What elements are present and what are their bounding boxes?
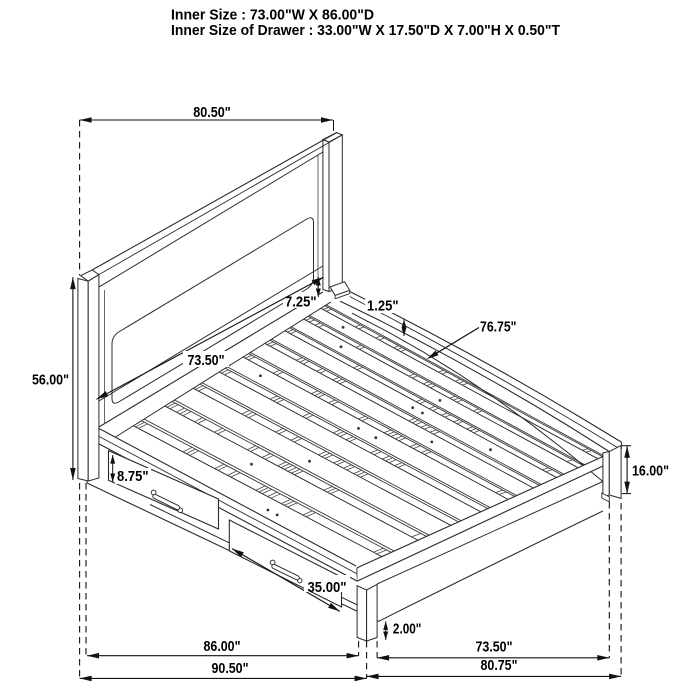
svg-text:16.00": 16.00" — [632, 462, 669, 479]
svg-text:90.50": 90.50" — [212, 660, 249, 677]
svg-text:35.00": 35.00" — [308, 579, 347, 596]
svg-text:Inner Size : 73.00"W X 86.00"D: Inner Size : 73.00"W X 86.00"D — [171, 8, 374, 24]
svg-text:7.25": 7.25" — [285, 295, 317, 311]
svg-text:8.75": 8.75" — [117, 469, 149, 485]
svg-text:86.00": 86.00" — [204, 638, 241, 655]
svg-text:1.25": 1.25" — [367, 299, 399, 315]
svg-text:73.50": 73.50" — [476, 639, 513, 656]
svg-text:73.50": 73.50" — [188, 352, 225, 369]
svg-text:56.00": 56.00" — [32, 372, 69, 389]
svg-text:Inner Size of Drawer : 33.00"W: Inner Size of Drawer : 33.00"W X 17.50"D… — [171, 23, 560, 39]
svg-text:76.75": 76.75" — [480, 319, 517, 336]
svg-text:2.00": 2.00" — [393, 621, 422, 638]
svg-text:80.75": 80.75" — [481, 657, 518, 674]
svg-text:80.50": 80.50" — [193, 104, 231, 121]
